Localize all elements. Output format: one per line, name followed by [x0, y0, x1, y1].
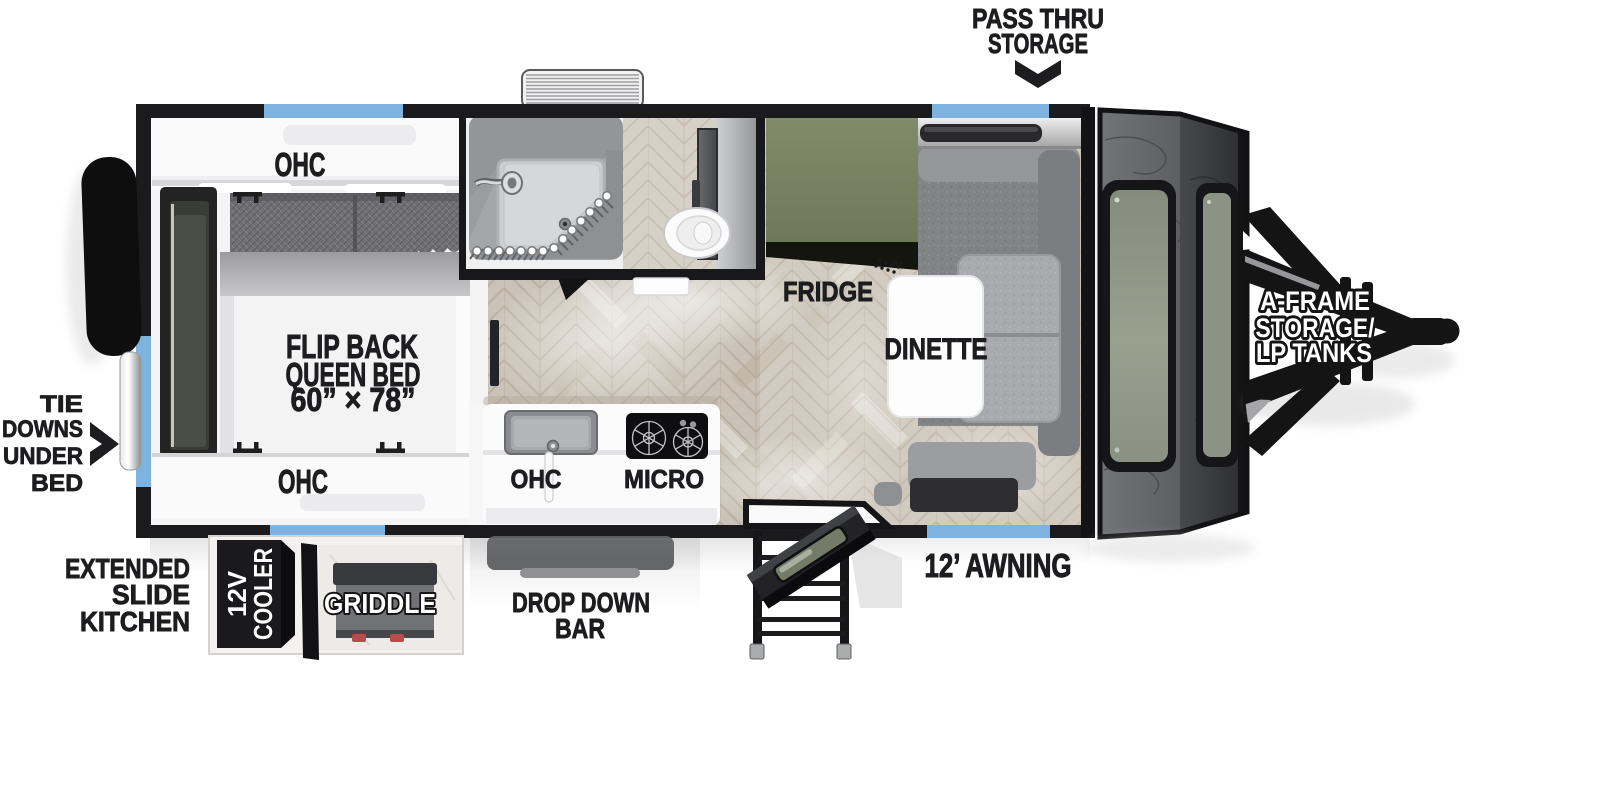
svg-text:BAR: BAR [555, 613, 605, 644]
svg-text:KITCHEN: KITCHEN [80, 606, 190, 637]
svg-text:COOLER: COOLER [248, 548, 278, 640]
svg-text:OHC: OHC [275, 146, 326, 183]
svg-text:MICRO: MICRO [624, 464, 704, 494]
svg-text:FRIDGE: FRIDGE [783, 276, 873, 307]
svg-text:DINETTE: DINETTE [885, 333, 988, 366]
svg-text:OHC: OHC [511, 464, 562, 494]
svg-text:STORAGE: STORAGE [988, 28, 1088, 59]
svg-text:DOWNS: DOWNS [2, 416, 83, 443]
svg-text:UNDER: UNDER [3, 443, 83, 470]
svg-text:OHC: OHC [278, 463, 328, 500]
svg-text:GRIDDLE: GRIDDLE [324, 588, 436, 619]
svg-text:12’ AWNING: 12’ AWNING [925, 547, 1072, 584]
svg-text:BED: BED [31, 470, 83, 497]
svg-text:LP TANKS: LP TANKS [1256, 338, 1372, 368]
svg-text:TIE: TIE [40, 391, 83, 418]
svg-text:A-FRAME: A-FRAME [1260, 286, 1370, 316]
svg-text:60” × 78”: 60” × 78” [291, 381, 416, 418]
